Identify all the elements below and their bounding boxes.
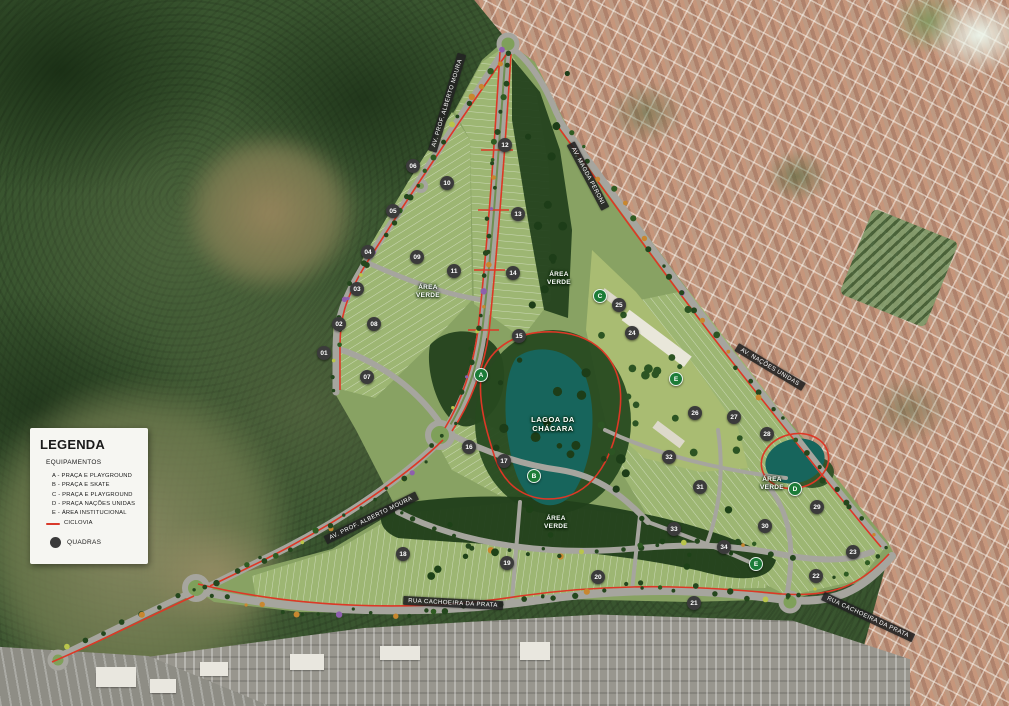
masterplan-drawing — [0, 0, 1009, 706]
legend-items: A - PRAÇA E PLAYGROUNDB - PRAÇA E SKATEC… — [52, 472, 142, 518]
legend-item: B - PRAÇA E SKATE — [52, 481, 142, 490]
legend-item: E - ÁREA INSTITUCIONAL — [52, 509, 142, 518]
legend-item: D - PRAÇA NAÇÕES UNIDAS — [52, 500, 142, 509]
legend-title: LEGENDA — [40, 437, 142, 452]
quadra-dot-swatch — [50, 537, 61, 548]
site-plan-map: AV. PROF. ALBERTO MOURAAV. MAGDA PERONIA… — [0, 0, 1009, 706]
legend-item: C - PRAÇA E PLAYGROUND — [52, 491, 142, 500]
ciclovia-line-swatch — [46, 523, 60, 526]
legend-ciclovia-label: CICLOVIA — [64, 519, 93, 528]
legend-item: A - PRAÇA E PLAYGROUND — [52, 472, 142, 481]
legend-subtitle: EQUIPAMENTOS — [46, 459, 142, 466]
legend-panel: LEGENDA EQUIPAMENTOS A - PRAÇA E PLAYGRO… — [30, 428, 148, 564]
legend-quadras-label: QUADRAS — [67, 539, 101, 546]
